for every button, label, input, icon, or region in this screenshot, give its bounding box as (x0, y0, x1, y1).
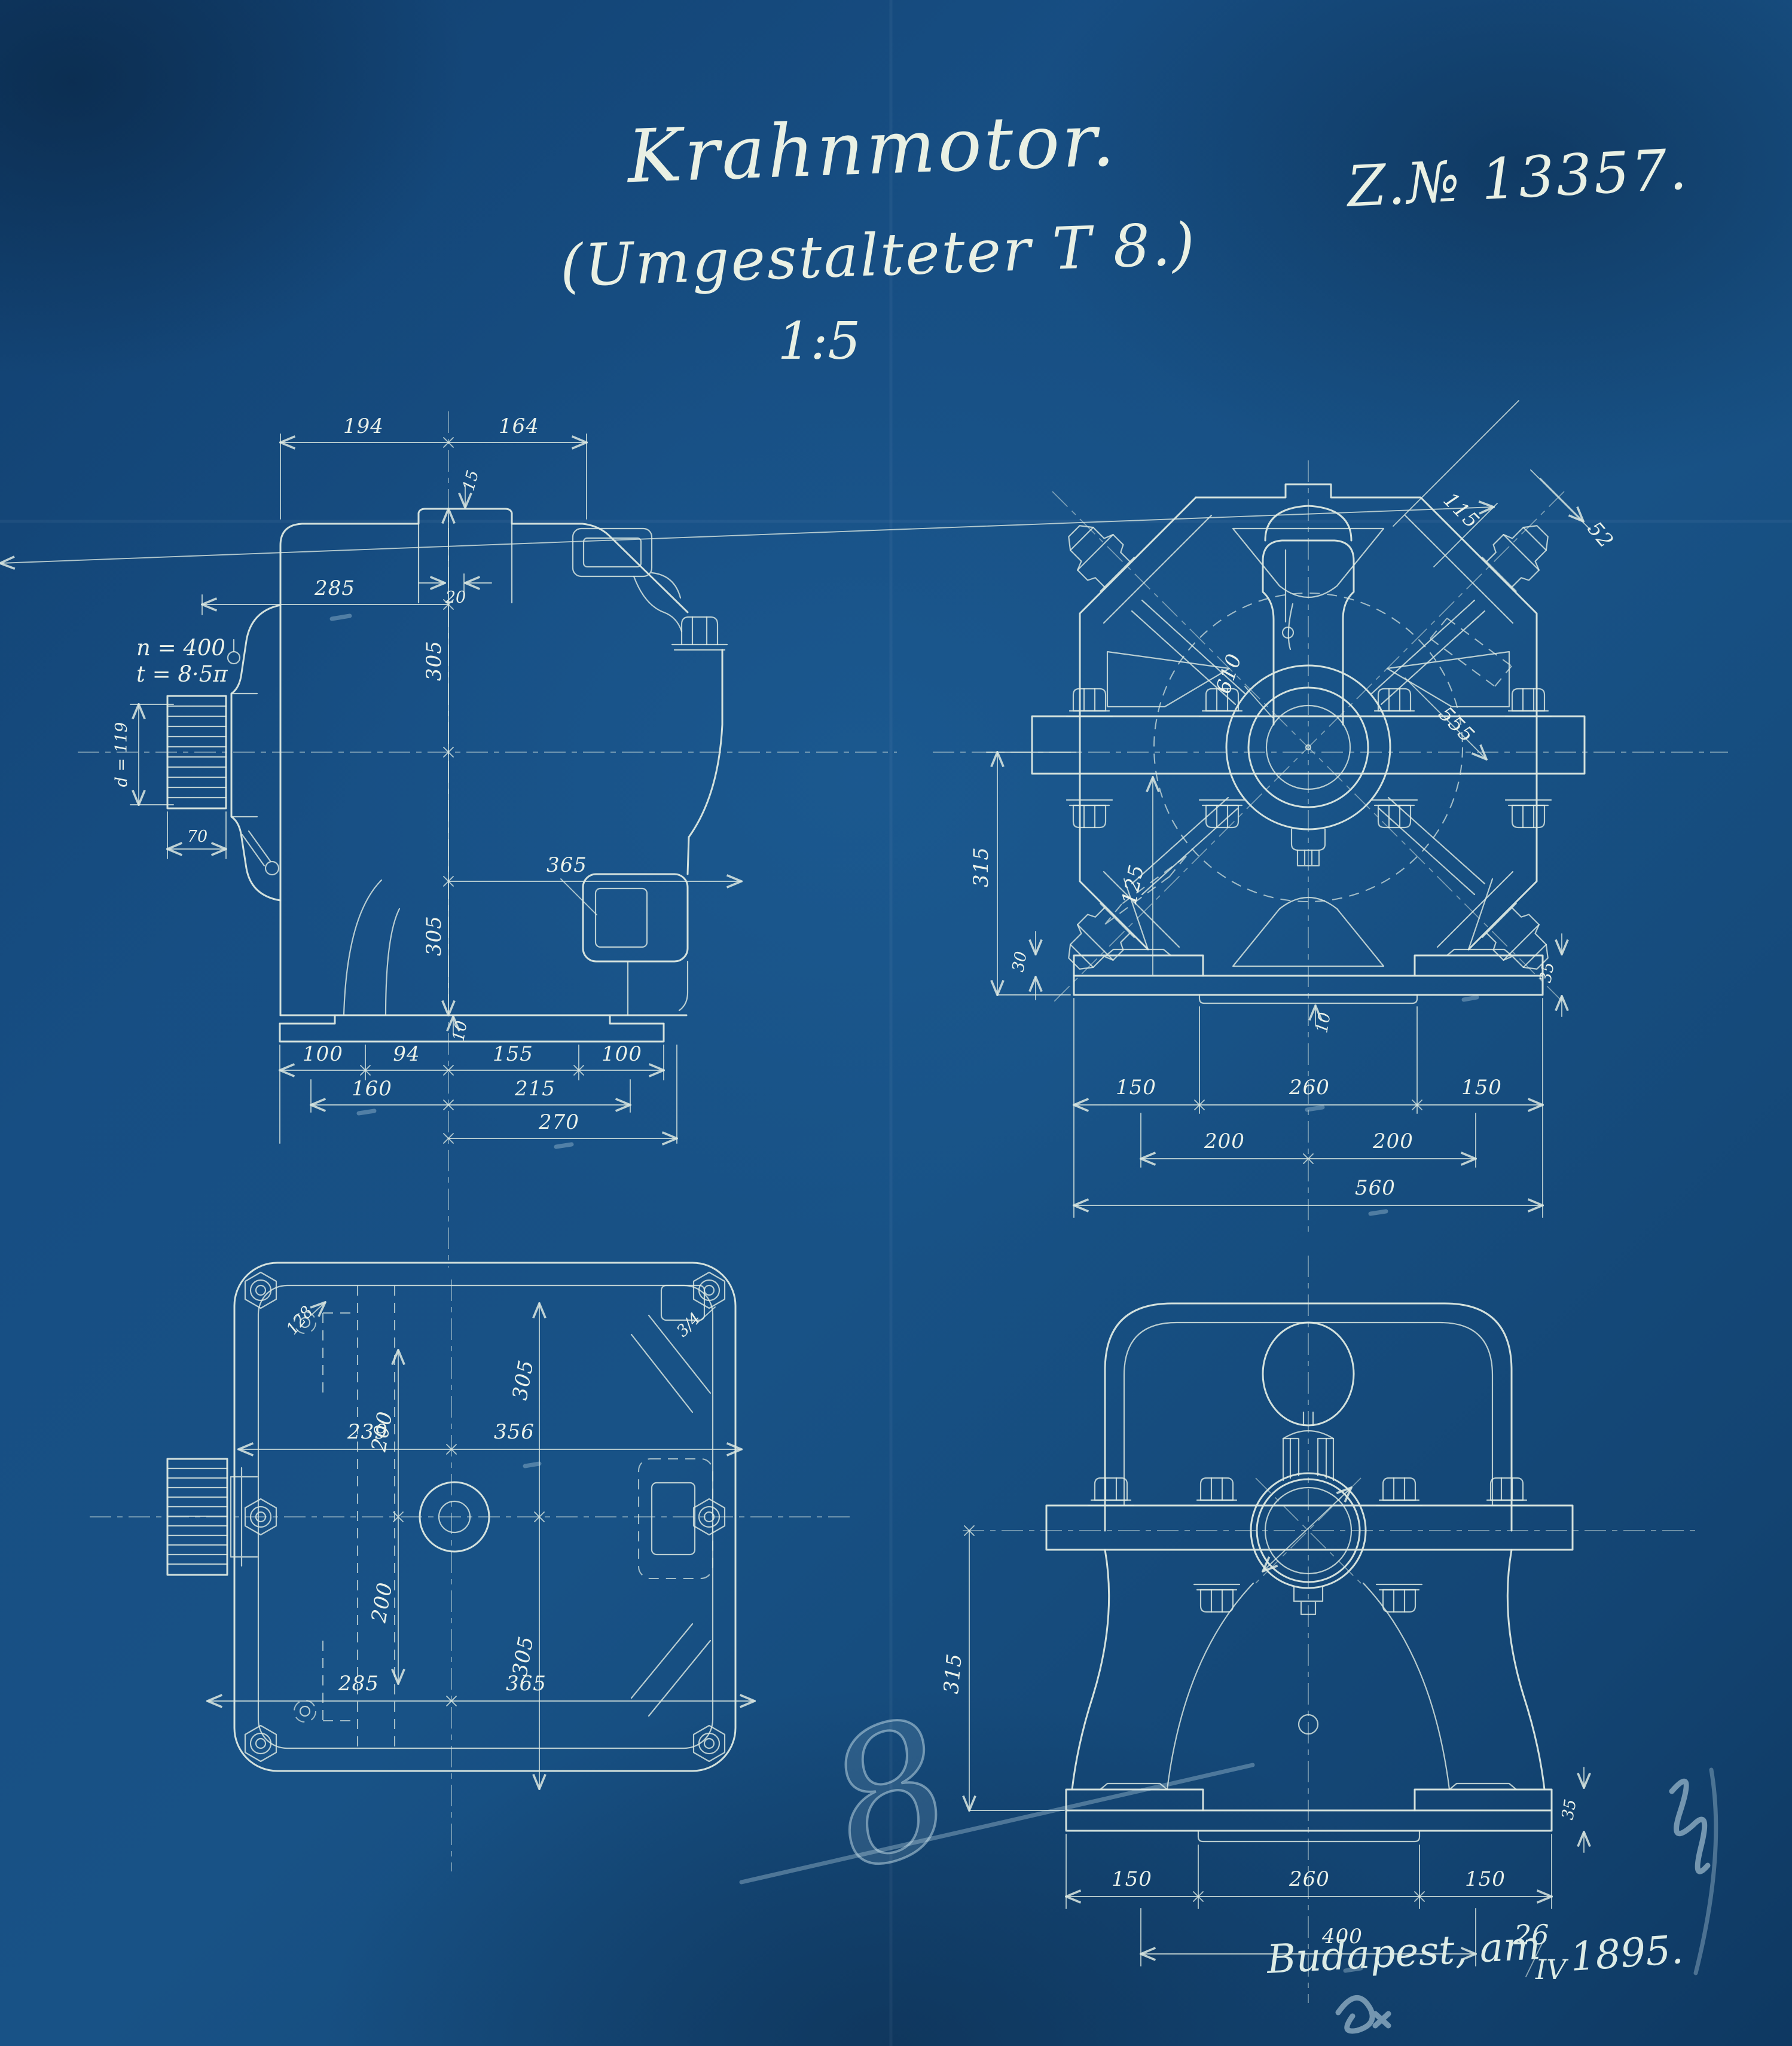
dim-label: 560 (1355, 1176, 1396, 1200)
dim-label: 200 (1372, 1129, 1414, 1153)
dim-label: 215 (514, 1077, 555, 1101)
dim-label: 200 (1204, 1129, 1245, 1153)
dim-label: 115 (1439, 488, 1484, 533)
dim-label: 150 (1461, 1076, 1502, 1100)
dim-label: 356 (494, 1420, 535, 1444)
dim-label: 305 (508, 1358, 539, 1402)
dim-label: 100 (303, 1042, 343, 1066)
dim-label: 200 (367, 1409, 397, 1454)
dim-label: 365 (506, 1672, 547, 1696)
dim-label: 150 (1112, 1867, 1152, 1891)
dim-label: 200 (367, 1580, 397, 1625)
view-rear: 315 35 150 260 150 400 (939, 1303, 1584, 1966)
dim-label: 164 (499, 414, 539, 438)
dim-label: 35 (1536, 961, 1558, 984)
dim-label: 70 (187, 827, 207, 846)
dim-label: 10 (1312, 1011, 1334, 1034)
dim-label: 260 (1289, 1076, 1330, 1100)
hole-diameter-note: 128 (283, 1303, 317, 1338)
dim-label: 260 (1289, 1867, 1330, 1891)
dim-label: 94 (393, 1042, 420, 1066)
drawing-scale: 1:5 (778, 312, 860, 371)
drawing-subtitle: (Umgestalteter T 8.) (559, 210, 1198, 300)
view-side-elevation: 194 164 15 20 285 305 305 365 d = 119 70… (112, 414, 741, 1143)
pitch-note: t = 8·5π (136, 661, 228, 687)
speed-note: n = 400 (136, 635, 225, 661)
dim-label: 270 (538, 1110, 579, 1134)
dim-label: 150 (1465, 1867, 1506, 1891)
dim-label: 315 (969, 847, 993, 887)
plan-dimensions: 239 356 305 305 200 200 285 365 128 3/4 (207, 1302, 755, 1789)
dim-label: 285 (338, 1672, 379, 1696)
rear-dimensions: 315 35 150 260 150 400 (939, 1488, 1584, 1966)
blueprint-drawing: Krahnmotor. (Umgestalteter T 8.) 1:5 Z.№… (0, 0, 1792, 2046)
view-front: 115 52 610 555 125 315 30 10 35 150 260 … (0, 401, 1618, 1217)
footer-day: 26 (1513, 1919, 1549, 1951)
initials-mark (1338, 1998, 1388, 2031)
dim-label: 285 (314, 576, 355, 600)
dim-label: 555 (1434, 702, 1479, 747)
dim-label: 305 (422, 915, 446, 956)
chalk-numeral: 8 (804, 1678, 976, 1912)
footer-place: Budapest, am (1265, 1922, 1542, 1983)
dim-label: 150 (1116, 1076, 1156, 1100)
dim-label: 10 (449, 1019, 471, 1043)
front-dimensions: 115 52 610 555 125 315 30 10 35 150 260 … (0, 401, 1618, 1217)
bolt-size-note: 3/4 (673, 1309, 705, 1341)
title-block: Krahnmotor. (Umgestalteter T 8.) 1:5 Z.№… (559, 97, 1690, 371)
view-plan: 239 356 305 305 200 200 285 365 128 3/4 (167, 1263, 755, 1789)
side-dimensions: 194 164 15 20 285 305 305 365 d = 119 70… (112, 414, 741, 1143)
dim-label: 30 (1009, 950, 1030, 973)
dim-label: 155 (493, 1042, 533, 1066)
dim-label: 305 (422, 640, 446, 681)
dim-label: 15 (459, 468, 483, 493)
dim-label: 100 (602, 1042, 642, 1066)
dim-label: 194 (343, 414, 384, 438)
blueprint-sheet: Krahnmotor. (Umgestalteter T 8.) 1:5 Z.№… (0, 0, 1792, 2046)
footer-year: 1895. (1569, 1926, 1685, 1980)
dim-label: 160 (352, 1077, 392, 1101)
dim-label: 315 (939, 1652, 967, 1694)
pinion-diameter-note: d = 119 (112, 722, 131, 787)
footer-month: IV (1535, 1953, 1569, 1986)
dim-label: 365 (547, 853, 587, 877)
drawing-title: Krahnmotor. (625, 97, 1118, 200)
drawing-number: Z.№ 13357. (1344, 137, 1690, 220)
dim-label: 125 (1118, 862, 1149, 907)
dim-label: 35 (1558, 1798, 1580, 1821)
signature-flourish (1672, 1781, 1708, 1871)
